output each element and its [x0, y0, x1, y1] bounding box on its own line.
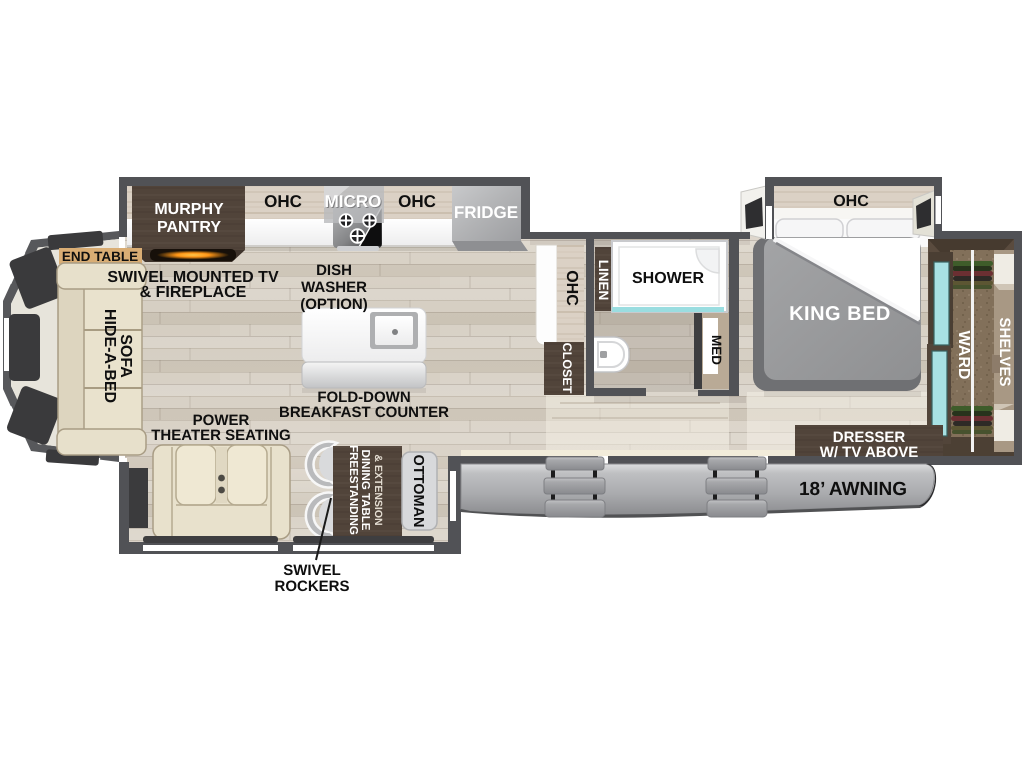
svg-text:THEATER SEATING: THEATER SEATING	[151, 427, 290, 444]
svg-text:KING BED: KING BED	[789, 303, 891, 325]
svg-text:OHC: OHC	[833, 193, 869, 210]
svg-text:OTTOMAN: OTTOMAN	[410, 454, 426, 527]
svg-text:END TABLE: END TABLE	[62, 249, 138, 264]
svg-text:PANTRY: PANTRY	[157, 219, 221, 236]
svg-text:HIDE-A-BED: HIDE-A-BED	[101, 309, 118, 403]
svg-text:CLOSET: CLOSET	[560, 343, 574, 394]
svg-text:ROCKERS: ROCKERS	[274, 578, 349, 595]
svg-text:MICRO: MICRO	[325, 192, 382, 211]
svg-text:SHELVES: SHELVES	[996, 318, 1013, 387]
svg-text:SOFA: SOFA	[117, 334, 134, 378]
svg-text:WARD: WARD	[955, 331, 972, 380]
svg-text:SWIVEL: SWIVEL	[283, 562, 341, 579]
svg-text:WASHER: WASHER	[301, 279, 367, 296]
svg-text:MED: MED	[709, 335, 724, 365]
svg-text:DINING TABLE: DINING TABLE	[359, 450, 371, 531]
svg-text:18’ AWNING: 18’ AWNING	[799, 479, 907, 500]
svg-text:& EXTENSION: & EXTENSION	[372, 454, 384, 525]
svg-text:FREESTANDING: FREESTANDING	[347, 445, 359, 535]
svg-text:& FIREPLACE: & FIREPLACE	[140, 284, 247, 301]
svg-text:OHC: OHC	[563, 270, 580, 306]
svg-text:DISH: DISH	[316, 262, 352, 279]
svg-text:(OPTION): (OPTION)	[300, 296, 368, 313]
svg-text:W/ TV ABOVE: W/ TV ABOVE	[820, 444, 919, 461]
svg-text:BREAKFAST COUNTER: BREAKFAST COUNTER	[279, 404, 449, 421]
svg-text:LINEN: LINEN	[596, 260, 611, 301]
svg-text:OHC: OHC	[264, 192, 302, 211]
svg-text:SHOWER: SHOWER	[632, 270, 704, 287]
svg-text:FRIDGE: FRIDGE	[454, 203, 518, 222]
svg-text:MURPHY: MURPHY	[154, 201, 224, 218]
svg-text:OHC: OHC	[398, 192, 436, 211]
